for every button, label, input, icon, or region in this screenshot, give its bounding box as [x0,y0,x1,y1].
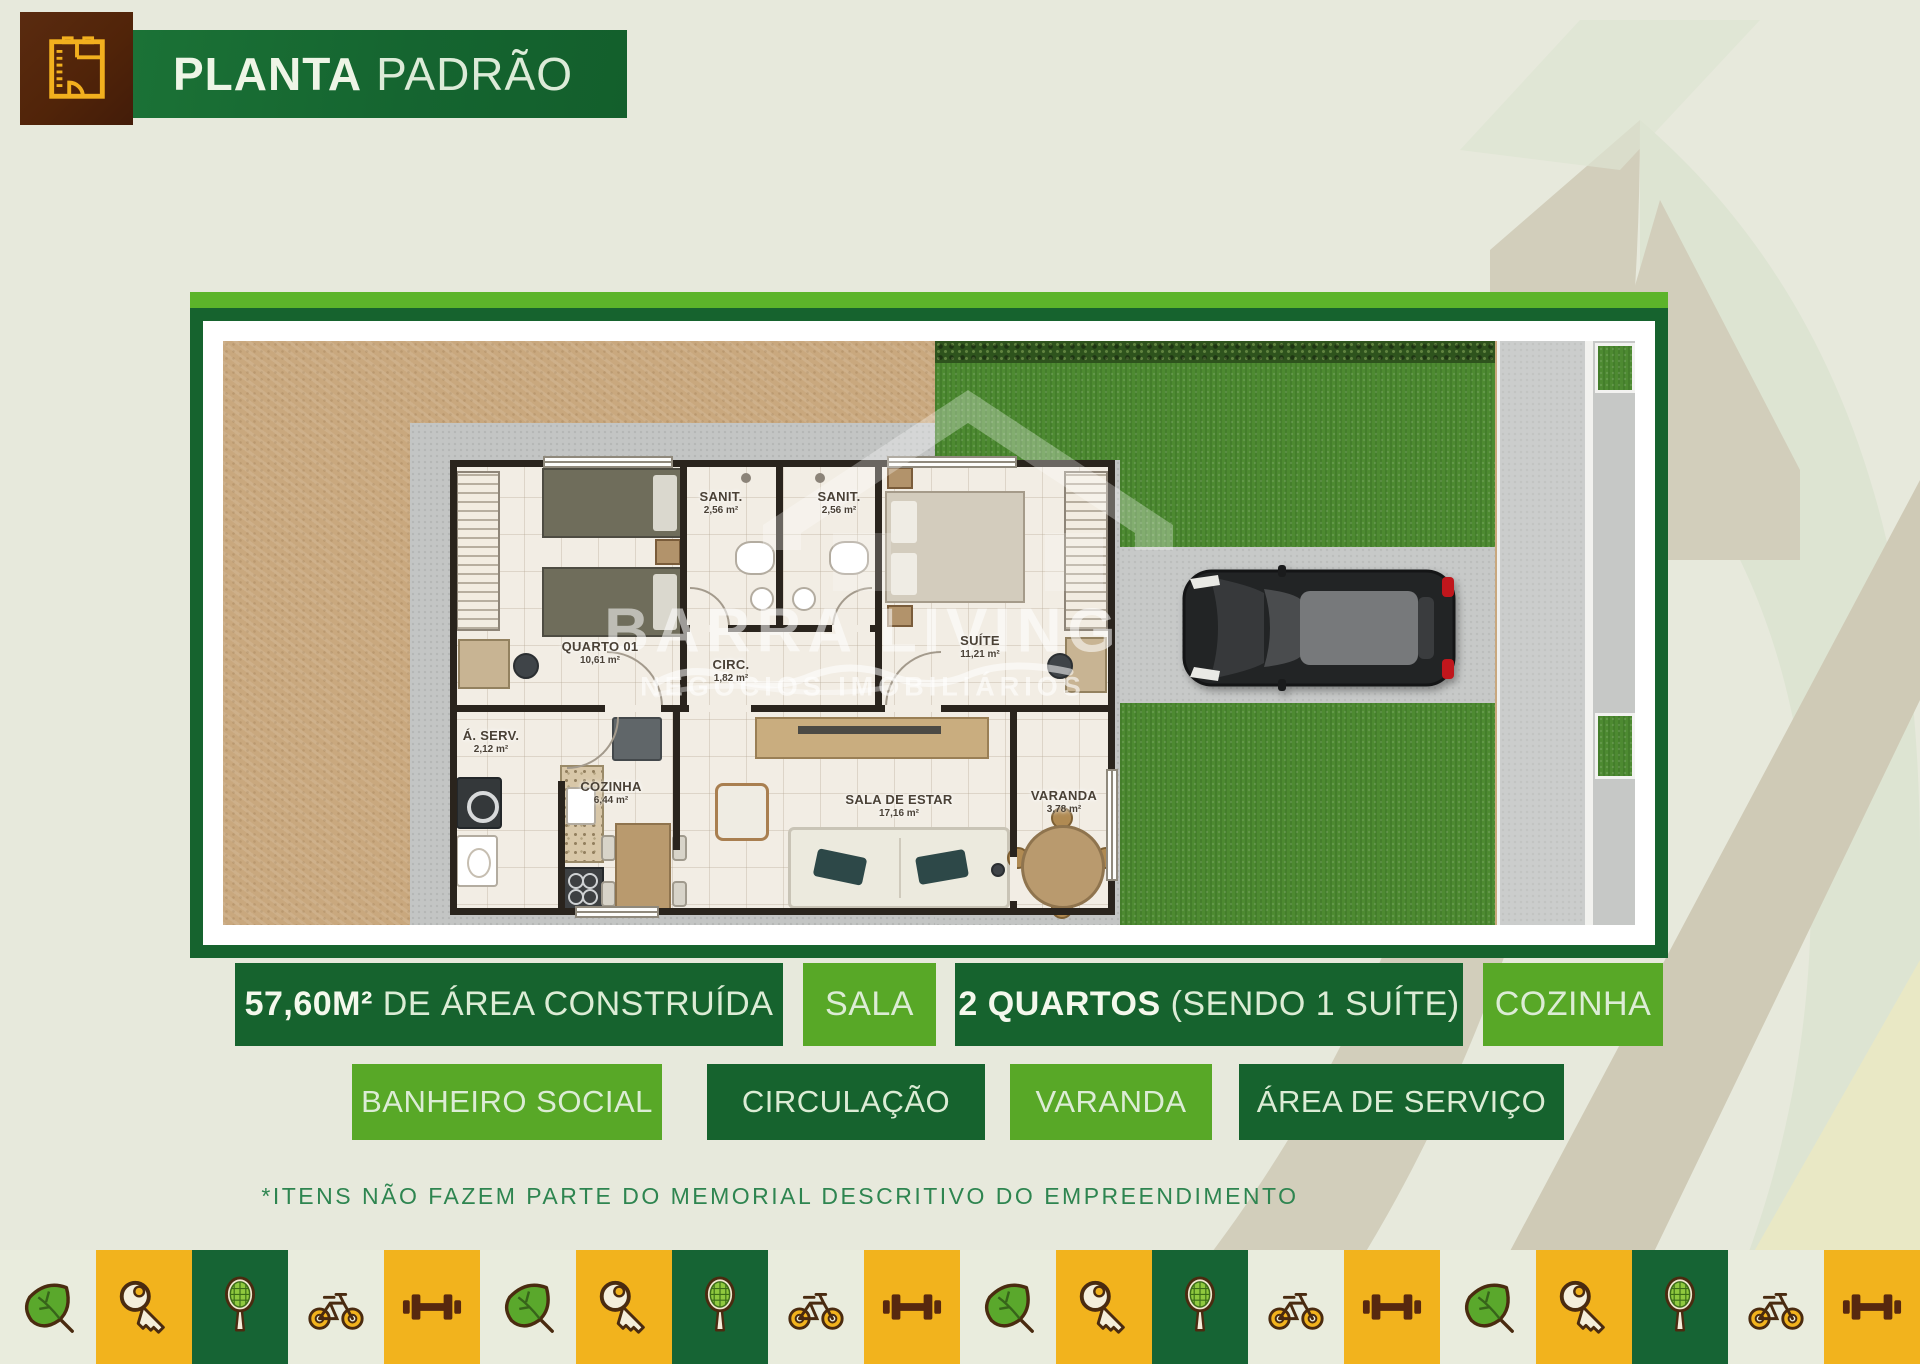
floor-plan-image: BARRA LIVING NEGÓCIOS IMOBILIÁRIOS QUART… [223,341,1635,925]
stove [562,867,604,911]
car-top-view [1180,563,1460,693]
feature-sala: SALA [803,963,936,1046]
door-opening [885,705,941,712]
panel-top-accent [190,292,1668,308]
door-opening [605,705,661,712]
feature-cozinha: COZINHA [1483,963,1663,1046]
key-icon [576,1250,672,1364]
disclaimer-text: *ITENS NÃO FAZEM PARTE DO MEMORIAL DESCR… [0,1183,1560,1210]
racket-icon [192,1250,288,1364]
racket-icon [1152,1250,1248,1364]
racket-icon [1632,1250,1728,1364]
armchair [715,783,769,841]
feature-area-construida: 57,60M² DE ÁREA CONSTRUÍDA [235,963,783,1046]
panel-frame: BARRA LIVING NEGÓCIOS IMOBILIÁRIOS QUART… [190,308,1668,958]
bike-icon [288,1250,384,1364]
page-title-light: PADRÃO [376,47,573,101]
double-bed [885,491,1025,603]
back-lawn [1120,703,1495,925]
room-label-cozinha: COZINHA6,44 m² [580,779,641,807]
leaf-icon [480,1250,576,1364]
dining-chair [601,835,616,861]
wall [680,460,687,712]
toilet [735,541,775,575]
nightstand [887,605,913,627]
leaf-icon [1440,1250,1536,1364]
floor-plan-panel: BARRA LIVING NEGÓCIOS IMOBILIÁRIOS QUART… [190,292,1668,958]
nightstand [655,539,681,565]
door-opening [690,625,728,632]
feature-quartos: 2 QUARTOS (SENDO 1 SUÍTE) [955,963,1463,1046]
amenities-icon-strip [0,1250,1920,1364]
floor-lamp [991,863,1005,877]
dining-chair [672,881,687,907]
patio-table [1021,825,1105,909]
hedge [935,341,1495,363]
wall [450,705,1115,712]
page-title-bold: PLANTA [173,47,362,101]
wardrobe [456,471,500,631]
shower-head [815,473,825,483]
room-label-circ: CIRC.1,82 m² [713,657,750,685]
curb-line [1585,341,1593,925]
dumbbell-icon [384,1250,480,1364]
street-grass-patch [1595,343,1635,393]
racket-icon [672,1250,768,1364]
desk-chair [1047,653,1073,679]
nightstand [887,467,913,489]
desk-chair [513,653,539,679]
floorplan-icon [40,32,114,106]
laundry-sink [456,835,498,887]
sidewalk [1497,341,1585,925]
wall [450,460,457,915]
wall [776,460,783,632]
room-label-suite: SUÍTE11,21 m² [960,633,1000,661]
dining-table [615,823,671,913]
shower-head [741,473,751,483]
room-label-quarto01: QUARTO 0110,61 m² [562,639,639,667]
floorplan-badge [20,12,133,125]
single-bed [542,468,682,538]
window [887,456,1017,468]
tv-console [755,717,989,759]
room-label-varanda: VARANDA3,78 m² [1031,788,1097,816]
desk [458,639,510,689]
toilet [829,541,869,575]
street [1593,341,1635,925]
bike-icon [1248,1250,1344,1364]
wall [673,712,680,850]
bike-icon [1728,1250,1824,1364]
door-opening [1010,857,1017,901]
lawn-strip [1120,460,1495,547]
feature-circulacao: CIRCULAÇÃO [707,1064,985,1140]
bike-icon [768,1250,864,1364]
window [575,906,659,918]
wall [875,460,882,712]
room-label-sanit1: SANIT.2,56 m² [700,489,743,517]
dumbbell-icon [1344,1250,1440,1364]
dumbbell-icon [1824,1250,1920,1364]
wall [558,781,565,915]
washing-machine [456,777,502,829]
fridge [612,717,662,761]
room-label-sala: SALA DE ESTAR17,16 m² [845,792,952,820]
room-label-aserv: Á. SERV.2,12 m² [463,728,520,756]
door-opening [689,705,751,712]
key-icon [1056,1250,1152,1364]
title-banner: PLANTAPADRÃO [133,30,627,118]
window [1106,769,1118,881]
feature-banheiro-social: BANHEIRO SOCIAL [352,1064,662,1140]
door-opening [832,625,870,632]
street-grass-patch [1595,713,1635,779]
leaf-icon [960,1250,1056,1364]
wardrobe [1064,471,1108,631]
key-icon [96,1250,192,1364]
bathroom-sink [792,587,816,611]
feature-area-servico: ÁREA DE SERVIÇO [1239,1064,1564,1140]
key-icon [1536,1250,1632,1364]
bathroom-sink [750,587,774,611]
dining-chair [601,881,616,907]
feature-varanda: VARANDA [1010,1064,1212,1140]
leaf-icon [0,1250,96,1364]
dumbbell-icon [864,1250,960,1364]
room-label-sanit2: SANIT.2,56 m² [818,489,861,517]
single-bed [542,567,682,637]
window [543,456,673,468]
